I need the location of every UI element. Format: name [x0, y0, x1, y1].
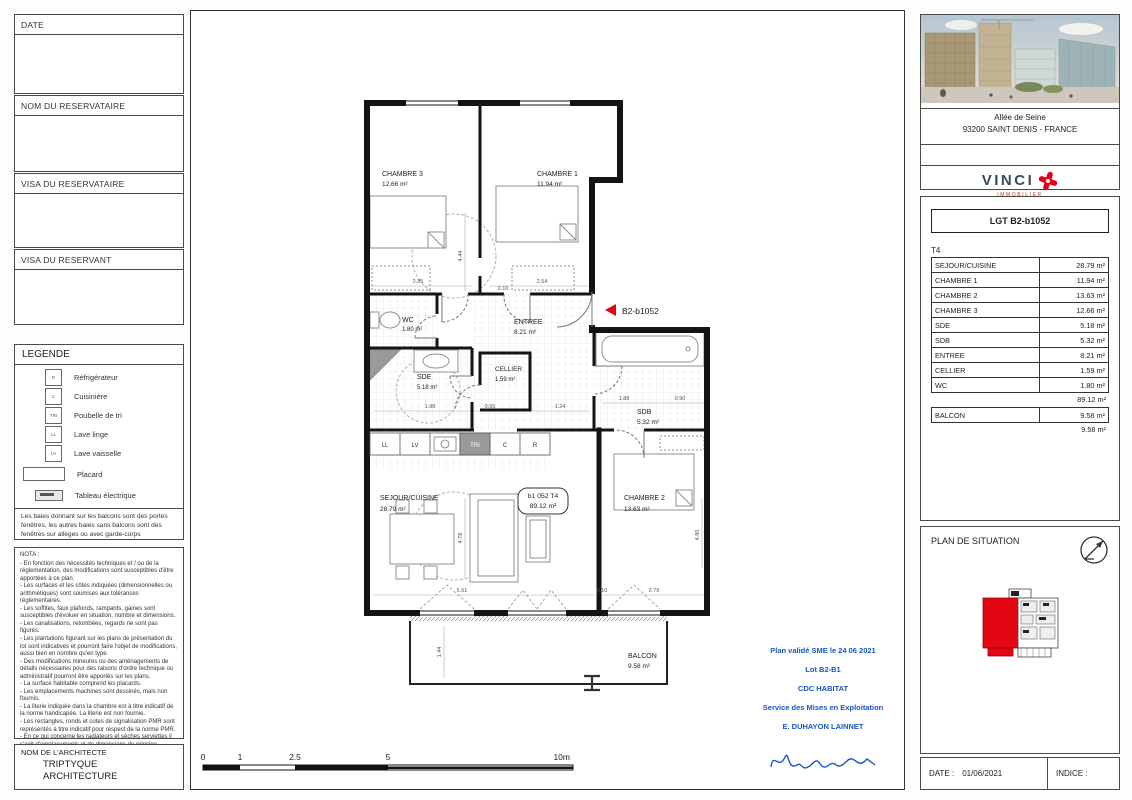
balcony-table: BALCON9.58 m²	[931, 407, 1109, 423]
svg-text:0.10: 0.10	[498, 286, 509, 292]
svg-text:1.98: 1.98	[425, 404, 436, 410]
legend-item-tri: TRI Poubelle de tri	[15, 406, 183, 425]
visa-reservant-label: VISA DU RESERVANT	[15, 250, 183, 270]
legend-item-cooker: C Cuisinière	[15, 387, 183, 406]
unit-type: T4	[931, 246, 1109, 255]
table-row: BALCON9.58 m²	[932, 408, 1109, 423]
svg-text:89.12 m²: 89.12 m²	[530, 503, 558, 510]
svg-text:1.59 m²: 1.59 m²	[495, 377, 515, 383]
habitable-total: 89.12 m²	[921, 395, 1106, 404]
scale-bar: 0 1 2.5 5 10m	[198, 748, 583, 782]
table-row: CHAMBRE 312.66 m²	[932, 303, 1109, 318]
room-cellier: CELLIER	[495, 366, 522, 373]
reservataire-name-label: NOM DU RESERVATAIRE	[15, 96, 183, 116]
footer-indice: INDICE :	[1048, 758, 1088, 789]
empty-row	[921, 145, 1119, 166]
fridge-icon: R	[45, 369, 62, 386]
kitchen-label-c: C	[503, 443, 508, 449]
svg-text:0.10: 0.10	[597, 588, 608, 594]
room-wc: WC	[402, 317, 414, 324]
svg-text:2.54: 2.54	[537, 279, 548, 285]
legend-item-tableau: Tableau électrique	[15, 485, 183, 505]
visa-reservataire-box: VISA DU RESERVATAIRE	[14, 173, 184, 248]
vinci-logo-icon	[1038, 171, 1058, 191]
svg-text:0: 0	[201, 752, 206, 762]
unit-table-box: LGT B2-b1052 T4 SEJOUR/CUISINE28.79 m² C…	[920, 196, 1120, 521]
validation-block: Plan validé SME le 24 06 2021 Lot B2-B1 …	[742, 646, 904, 786]
project-photo	[921, 15, 1119, 103]
svg-text:9.58 m²: 9.58 m²	[628, 663, 651, 670]
legend-title: LEGENDE	[15, 345, 183, 365]
validation-line: CDC HABITAT	[742, 684, 904, 693]
address-line1: Allée de Seine	[921, 112, 1119, 124]
date-value: 01/06/2021	[962, 769, 1002, 778]
legend-item-dishwasher: LV Lave vaisselle	[15, 444, 183, 463]
electrical-panel-icon	[35, 490, 63, 501]
signature	[763, 741, 883, 781]
floor-plan: LL LV TRI C R B2-b1052 b1 052 T4 89.12 m…	[362, 98, 720, 702]
svg-text:8.21 m²: 8.21 m²	[514, 329, 537, 336]
svg-text:4.78: 4.78	[458, 533, 464, 544]
architect-box: NOM DE L'ARCHITECTE TRIPTYQUE ARCHITECTU…	[14, 744, 184, 790]
legend-item-placard: Placard	[15, 463, 183, 485]
lot-stamp: b1 052 T4 89.12 m²	[518, 488, 568, 514]
project-box: Allée de Seine 93200 SAINT DENIS - FRANC…	[920, 14, 1120, 190]
brand-name: VINCI	[982, 172, 1035, 189]
unit-marker: B2-b1052	[605, 304, 659, 316]
closet-icon	[23, 467, 65, 481]
washing-machine-icon: LL	[45, 426, 62, 443]
table-row: SDB5.32 m²	[932, 333, 1109, 348]
legend-note: Les baies donnant sur les balcons sont d…	[15, 508, 183, 544]
svg-text:1: 1	[238, 752, 243, 762]
validation-line: Service des Mises en Exploitation	[742, 703, 904, 712]
svg-text:1.88: 1.88	[619, 396, 630, 402]
situation-miniplan	[977, 587, 1065, 669]
room-balcon: BALCON	[628, 653, 657, 660]
svg-text:4.44: 4.44	[458, 251, 464, 262]
architect-name: TRIPTYQUE ARCHITECTURE	[15, 757, 183, 783]
room-sejour: SEJOUR/CUISINE	[380, 495, 439, 502]
svg-text:4.80: 4.80	[695, 530, 701, 541]
svg-text:12.66 m²: 12.66 m²	[382, 181, 408, 188]
nota-title: NOTA :	[20, 552, 178, 560]
unit-marker-label: B2-b1052	[622, 306, 659, 316]
date-box-label: DATE	[15, 15, 183, 35]
indice-label: INDICE :	[1056, 769, 1088, 778]
svg-text:2.5: 2.5	[289, 752, 301, 762]
table-row: CHAMBRE 213.63 m²	[932, 288, 1109, 303]
room-entree: ENTREE	[514, 319, 543, 326]
architect-label: NOM DE L'ARCHITECTE	[15, 745, 183, 757]
room-sdb: SDB	[637, 409, 652, 416]
svg-text:5: 5	[386, 752, 391, 762]
unit-title: LGT B2-b1052	[931, 209, 1109, 233]
svg-text:10m: 10m	[553, 752, 570, 762]
date-label: DATE :	[929, 769, 954, 778]
svg-text:1.24: 1.24	[555, 404, 566, 410]
svg-text:5.61: 5.61	[457, 588, 468, 594]
validation-line: E. DUHAYON LAINNET	[742, 722, 904, 731]
cooker-icon: C	[45, 388, 62, 405]
svg-text:5.32 m²: 5.32 m²	[637, 419, 660, 426]
north-arrow-icon	[1077, 533, 1111, 567]
legend-box: LEGENDE R Réfrigérateur C Cuisinière TRI…	[14, 344, 184, 540]
nota-text: - En fonction des nécessités techniques …	[20, 561, 178, 750]
svg-text:b1 052 T4: b1 052 T4	[528, 493, 559, 500]
room-chambre3: CHAMBRE 3	[382, 171, 423, 178]
svg-text:28.79 m²: 28.79 m²	[380, 506, 406, 513]
svg-text:2.85: 2.85	[413, 279, 424, 285]
svg-text:1.80 m²: 1.80 m²	[402, 327, 422, 333]
date-box: DATE	[14, 14, 184, 94]
nota-box: NOTA : - En fonction des nécessités tech…	[14, 547, 184, 739]
table-row: SEJOUR/CUISINE28.79 m²	[932, 258, 1109, 273]
project-address: Allée de Seine 93200 SAINT DENIS - FRANC…	[921, 108, 1119, 145]
table-row: ENTREE8.21 m²	[932, 348, 1109, 363]
address-line2: 93200 SAINT DENIS - FRANCE	[921, 124, 1119, 136]
drawing-sheet: DATE NOM DU RESERVATAIRE VISA DU RESERVA…	[0, 0, 1132, 800]
visa-reservataire-label: VISA DU RESERVATAIRE	[15, 174, 183, 194]
reservataire-name-box: NOM DU RESERVATAIRE	[14, 95, 184, 172]
room-chambre2: CHAMBRE 2	[624, 495, 665, 502]
validation-line: Lot B2-B1	[742, 665, 904, 674]
kitchen-label-r: R	[533, 443, 538, 449]
validation-line: Plan validé SME le 24 06 2021	[742, 646, 904, 655]
svg-text:11.94 m²: 11.94 m²	[537, 181, 563, 188]
svg-text:5.18 m²: 5.18 m²	[417, 385, 437, 391]
room-sde: SDE	[417, 374, 432, 381]
recycle-bin-icon: TRI	[45, 407, 62, 424]
area-table: SEJOUR/CUISINE28.79 m² CHAMBRE 111.94 m²…	[931, 257, 1109, 393]
svg-text:2.79: 2.79	[649, 588, 660, 594]
highlighted-unit	[983, 598, 1018, 648]
table-row: CHAMBRE 111.94 m²	[932, 273, 1109, 288]
footer-date: DATE : 01/06/2021	[921, 758, 1048, 789]
kitchen-strip: LL LV TRI C R	[370, 433, 550, 455]
footer-box: DATE : 01/06/2021 INDICE :	[920, 757, 1120, 790]
kitchen-label-tri: TRI	[470, 443, 480, 449]
room-chambre1: CHAMBRE 1	[537, 171, 578, 178]
table-row: SDE5.18 m²	[932, 318, 1109, 333]
svg-text:13.63 m²: 13.63 m²	[624, 506, 650, 513]
balcony-total: 9.58 m²	[921, 425, 1106, 434]
table-row: CELLIER1.59 m²	[932, 363, 1109, 378]
situation-box: PLAN DE SITUATION	[920, 526, 1120, 754]
legend-item-washer: LL Lave linge	[15, 425, 183, 444]
dishwasher-icon: LV	[45, 445, 62, 462]
balcony	[410, 585, 667, 690]
svg-text:0.55: 0.55	[485, 404, 496, 410]
visa-reservant-box: VISA DU RESERVANT	[14, 249, 184, 325]
svg-text:0.90: 0.90	[675, 396, 686, 402]
kitchen-label-lv: LV	[412, 443, 419, 449]
unit-marker-arrow-icon	[605, 304, 616, 316]
kitchen-label-ll: LL	[382, 443, 389, 449]
legend-item-fridge: R Réfrigérateur	[15, 368, 183, 387]
svg-text:1.44: 1.44	[437, 647, 443, 658]
table-row: WC1.80 m²	[932, 378, 1109, 393]
